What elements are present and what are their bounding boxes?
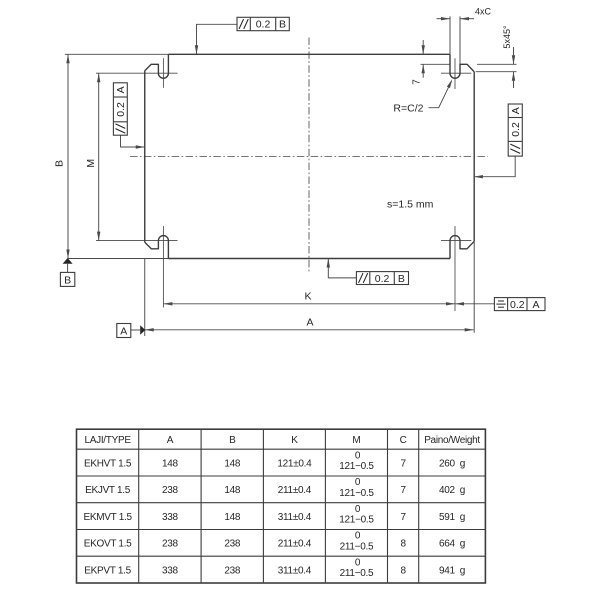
svg-text:664 g: 664 g [439,539,465,550]
svg-text:148: 148 [224,485,241,496]
svg-text:0: 0 [355,504,361,515]
svg-text:Paino/Weight: Paino/Weight [424,435,480,446]
svg-text:C: C [400,435,407,446]
svg-text:0.2: 0.2 [510,122,522,137]
svg-text:EKJVT 1.5: EKJVT 1.5 [85,485,131,496]
svg-text:238: 238 [224,565,241,576]
svg-text:238: 238 [162,485,179,496]
svg-text:7: 7 [400,485,406,496]
svg-text:238: 238 [224,539,241,550]
svg-text:121±0.4: 121±0.4 [277,458,312,469]
svg-text:8: 8 [400,539,406,550]
svg-text:A: A [532,299,539,311]
svg-text:311±0.4: 311±0.4 [278,512,312,523]
svg-text:EKOVT 1.5: EKOVT 1.5 [84,539,132,550]
svg-text:311±0.4: 311±0.4 [278,565,312,576]
svg-text:M: M [85,159,97,168]
svg-text:8: 8 [400,565,406,576]
svg-text:A: A [167,435,174,446]
svg-text:B: B [279,19,286,31]
svg-text:B: B [229,435,236,446]
svg-text:0: 0 [355,557,361,568]
svg-text:s=1.5 mm: s=1.5 mm [387,199,434,211]
svg-text:0: 0 [355,531,361,542]
svg-text:EKHVT 1.5: EKHVT 1.5 [84,458,132,469]
svg-text:EKPVT 1.5: EKPVT 1.5 [84,565,131,576]
svg-text:238: 238 [162,539,179,550]
svg-text:0.2: 0.2 [115,102,127,117]
svg-text:121−0.5: 121−0.5 [339,461,374,472]
svg-text:B: B [64,274,71,286]
svg-text:148: 148 [162,458,179,469]
svg-text:211−0.5: 211−0.5 [340,568,374,579]
svg-text:0.2: 0.2 [510,299,525,311]
svg-text:K: K [304,291,311,303]
svg-text:148: 148 [224,458,241,469]
svg-text:A: A [115,86,127,93]
svg-text:A: A [120,325,127,337]
svg-text:211±0.4: 211±0.4 [278,539,312,550]
svg-text:B: B [398,273,405,285]
svg-text:EKMVT 1.5: EKMVT 1.5 [83,512,132,523]
svg-text:941 g: 941 g [439,565,465,576]
svg-text:4xC: 4xC [475,7,492,17]
svg-text:K: K [291,435,298,446]
svg-text:402 g: 402 g [439,485,465,496]
svg-text:338: 338 [162,565,179,576]
svg-text:148: 148 [224,512,241,523]
svg-text:121−0.5: 121−0.5 [339,515,374,526]
svg-text:211±0.4: 211±0.4 [278,485,312,496]
svg-text:A: A [510,107,522,114]
svg-text:7: 7 [400,512,406,523]
svg-text:0.2: 0.2 [375,273,390,285]
svg-text:M: M [352,435,360,446]
svg-text:121−0.5: 121−0.5 [339,488,374,499]
svg-text:R=C/2: R=C/2 [393,103,423,115]
svg-text:7: 7 [400,458,406,469]
svg-text:0: 0 [355,477,361,488]
svg-text:591 g: 591 g [439,512,465,523]
svg-text:338: 338 [162,512,179,523]
svg-text:260 g: 260 g [439,458,465,469]
svg-text:A: A [306,317,313,329]
svg-text:0: 0 [355,450,361,461]
svg-text:0.2: 0.2 [256,19,271,31]
svg-text:7: 7 [411,79,422,85]
svg-text:5x45°: 5x45° [502,25,512,49]
svg-text:B: B [54,160,66,167]
svg-text:LAJI/TYPE: LAJI/TYPE [84,435,131,446]
svg-text:211−0.5: 211−0.5 [340,541,374,552]
